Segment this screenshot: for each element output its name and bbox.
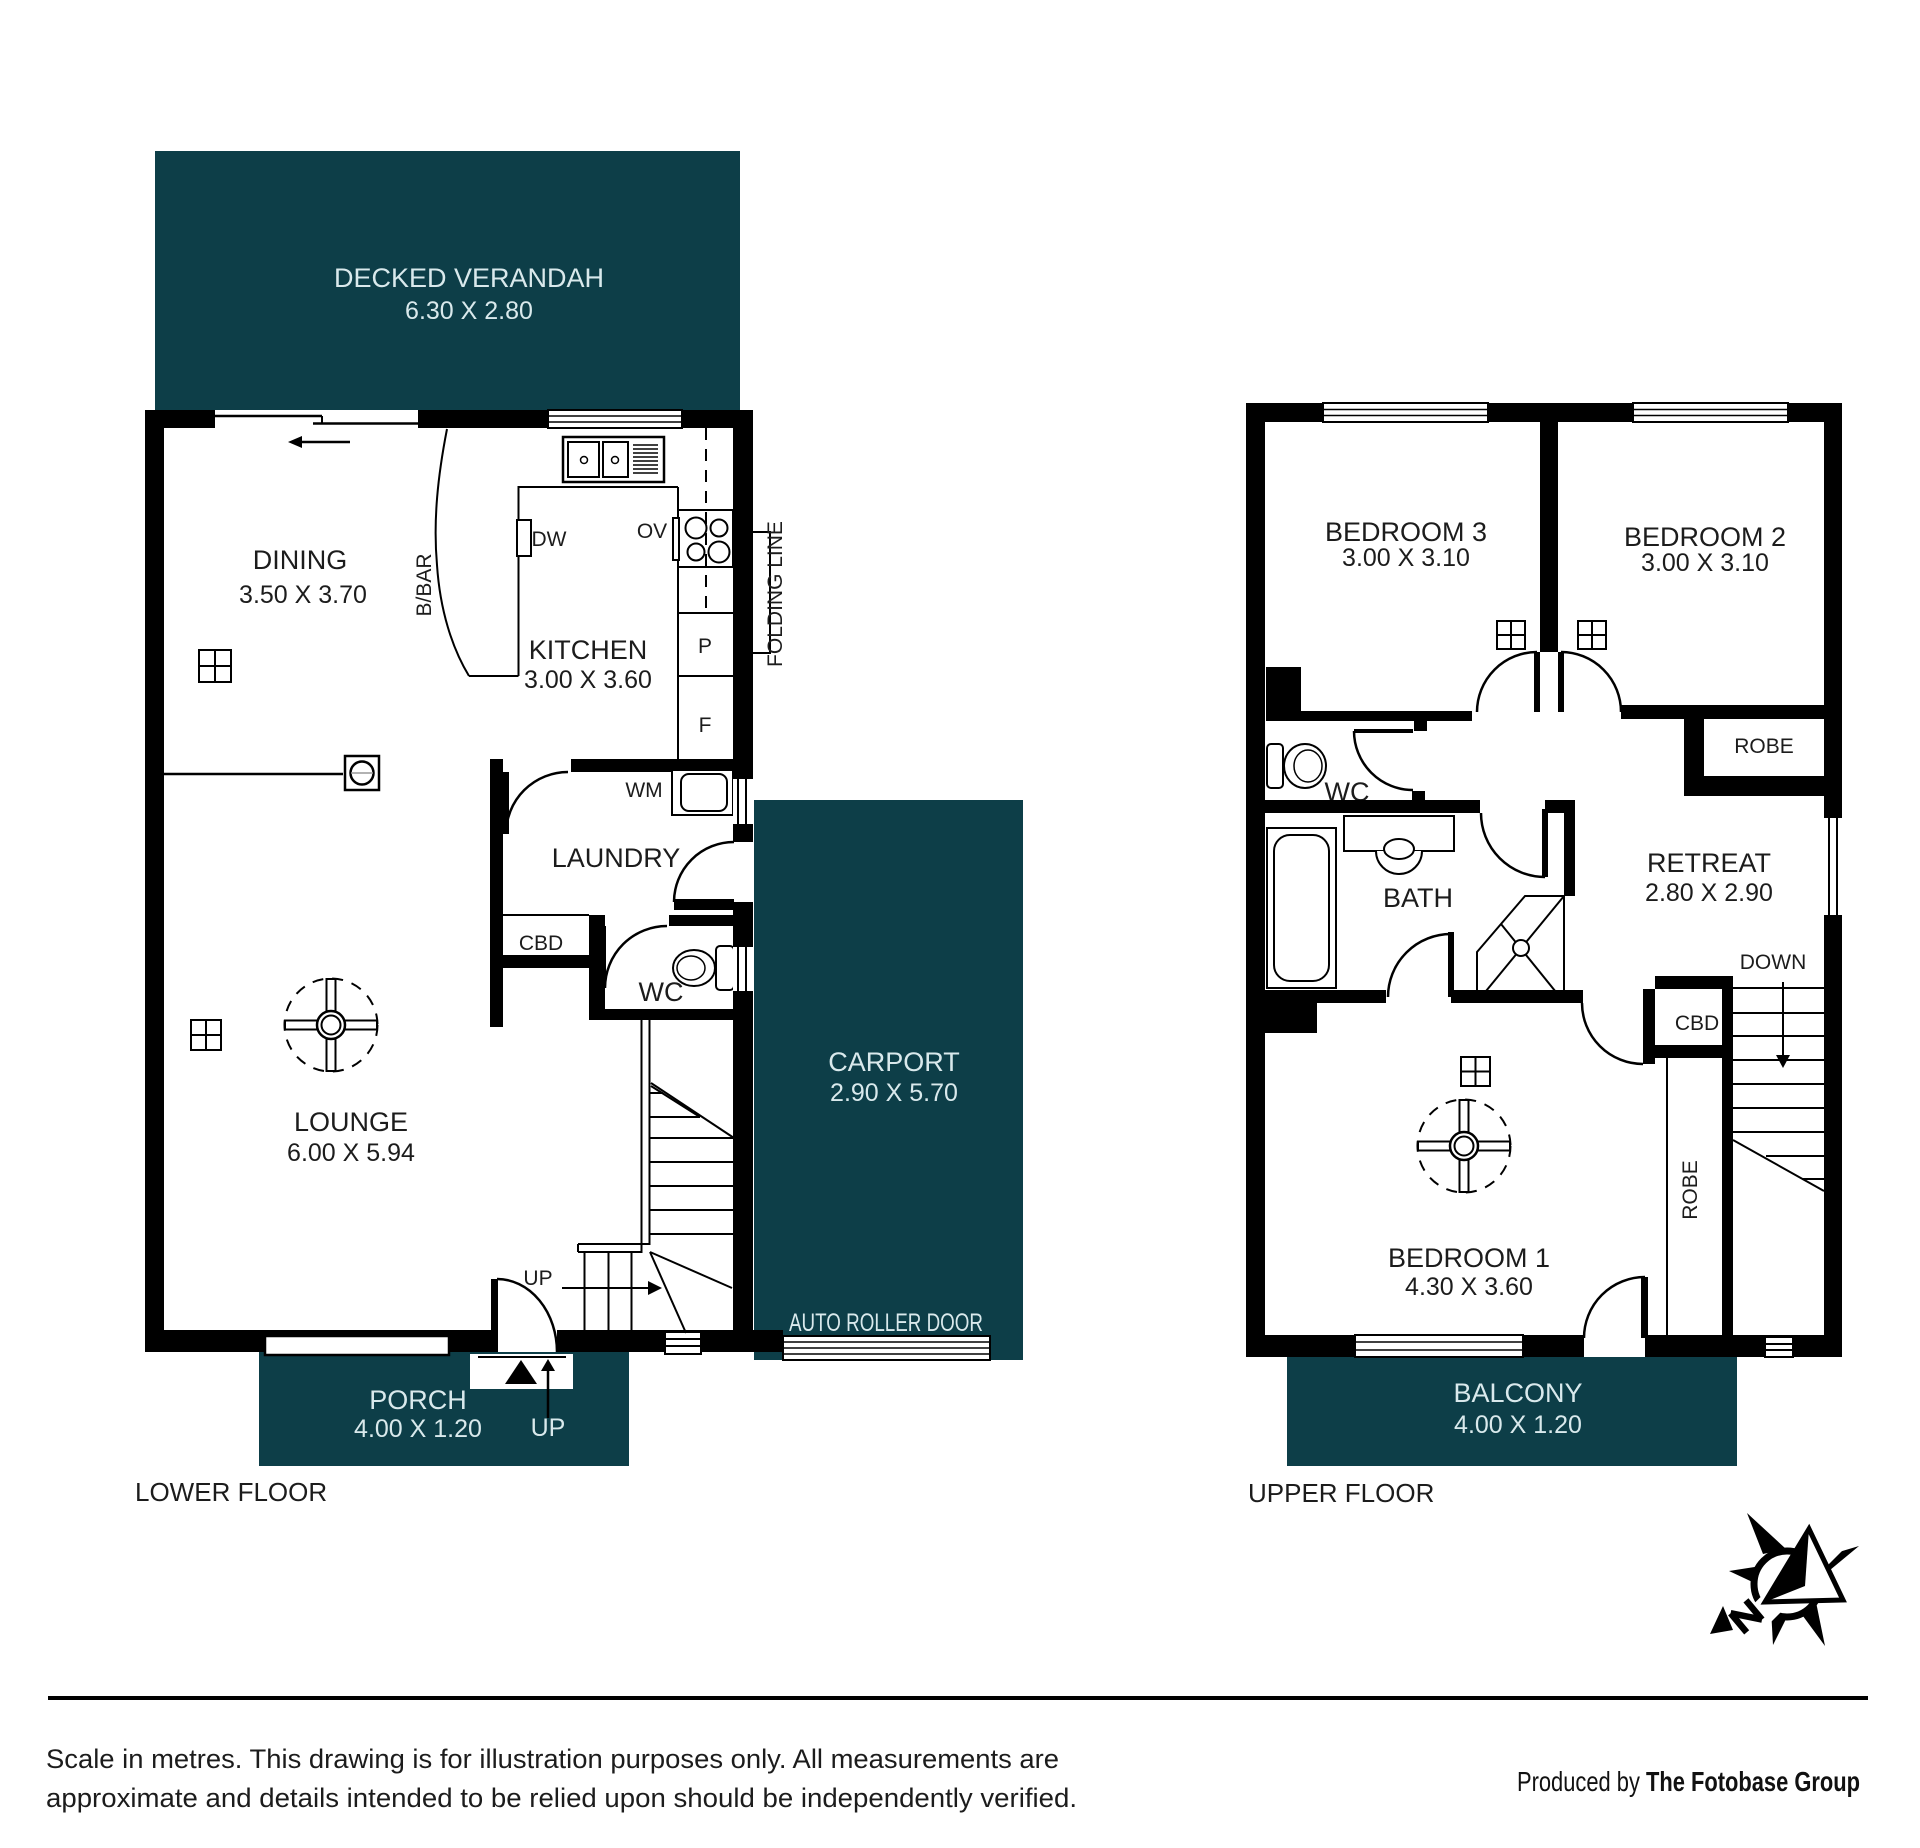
- svg-text:CARPORT: CARPORT: [828, 1047, 960, 1077]
- svg-text:6.30 X 2.80: 6.30 X 2.80: [405, 297, 533, 325]
- svg-text:LOWER FLOOR: LOWER FLOOR: [135, 1477, 327, 1507]
- svg-text:Produced by The Fotobase Group: Produced by The Fotobase Group: [1517, 1766, 1860, 1797]
- svg-text:BATH: BATH: [1383, 883, 1453, 913]
- svg-text:DW: DW: [532, 528, 567, 551]
- svg-text:approximate and details intend: approximate and details intended to be r…: [46, 1783, 1077, 1813]
- svg-text:ROBE: ROBE: [1679, 1160, 1702, 1220]
- svg-text:3.50 X 3.70: 3.50 X 3.70: [239, 581, 367, 609]
- svg-text:BEDROOM 2: BEDROOM 2: [1624, 522, 1786, 552]
- svg-text:PORCH: PORCH: [369, 1385, 467, 1415]
- svg-text:CBD: CBD: [519, 932, 563, 955]
- svg-text:4.30 X 3.60: 4.30 X 3.60: [1405, 1273, 1533, 1301]
- svg-text:F: F: [699, 714, 712, 737]
- svg-text:DECKED VERANDAH: DECKED VERANDAH: [334, 263, 604, 293]
- svg-text:BEDROOM 3: BEDROOM 3: [1325, 517, 1487, 547]
- svg-text:P: P: [698, 635, 712, 658]
- svg-text:BALCONY: BALCONY: [1453, 1378, 1582, 1408]
- svg-text:2.90 X 5.70: 2.90 X 5.70: [830, 1079, 958, 1107]
- svg-text:DINING: DINING: [253, 545, 348, 575]
- svg-text:Scale in metres. This drawing: Scale in metres. This drawing is for ill…: [46, 1744, 1059, 1774]
- svg-text:3.00 X 3.60: 3.00 X 3.60: [524, 666, 652, 694]
- svg-text:4.00 X 1.20: 4.00 X 1.20: [1454, 1411, 1582, 1439]
- svg-text:UP: UP: [523, 1267, 552, 1290]
- svg-text:LAUNDRY: LAUNDRY: [552, 843, 681, 873]
- svg-text:3.00 X 3.10: 3.00 X 3.10: [1342, 544, 1470, 572]
- svg-text:OV: OV: [637, 520, 667, 543]
- svg-text:WM: WM: [625, 779, 662, 802]
- svg-text:BEDROOM 1: BEDROOM 1: [1388, 1243, 1550, 1273]
- svg-text:DOWN: DOWN: [1740, 951, 1807, 974]
- svg-text:6.00 X 5.94: 6.00 X 5.94: [287, 1139, 415, 1167]
- svg-text:FOLDING LINE: FOLDING LINE: [764, 521, 787, 667]
- svg-text:CBD: CBD: [1675, 1012, 1719, 1035]
- svg-text:3.00 X 3.10: 3.00 X 3.10: [1641, 549, 1769, 577]
- svg-text:RETREAT: RETREAT: [1647, 848, 1771, 878]
- svg-text:AUTO ROLLER DOOR: AUTO ROLLER DOOR: [789, 1309, 983, 1337]
- svg-text:WC: WC: [639, 977, 684, 1007]
- svg-text:2.80 X 2.90: 2.80 X 2.90: [1645, 879, 1773, 907]
- svg-text:4.00 X 1.20: 4.00 X 1.20: [354, 1415, 482, 1443]
- svg-text:LOUNGE: LOUNGE: [294, 1107, 408, 1137]
- svg-text:UPPER FLOOR: UPPER FLOOR: [1248, 1478, 1434, 1508]
- svg-text:ROBE: ROBE: [1734, 735, 1794, 758]
- svg-text:KITCHEN: KITCHEN: [529, 635, 648, 665]
- svg-text:UP: UP: [531, 1414, 566, 1442]
- svg-text:B/BAR: B/BAR: [413, 553, 436, 616]
